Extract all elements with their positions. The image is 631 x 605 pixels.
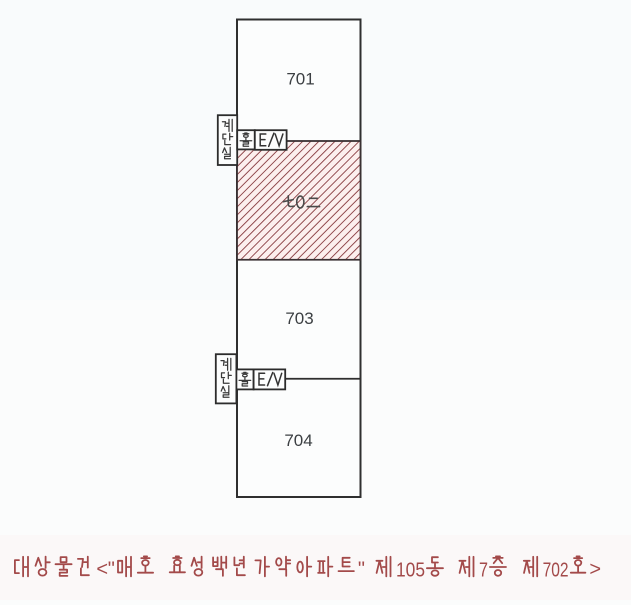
- svg-text:7: 7: [479, 559, 488, 582]
- svg-text:703: 703: [285, 309, 313, 328]
- svg-text:": ": [358, 559, 365, 581]
- svg-text:": ": [108, 559, 115, 581]
- svg-text:>: >: [589, 559, 601, 581]
- svg-text:105: 105: [396, 559, 425, 582]
- svg-text:701: 701: [286, 70, 314, 89]
- svg-text:702: 702: [543, 559, 569, 582]
- svg-text:704: 704: [284, 431, 312, 450]
- svg-text:<: <: [96, 559, 108, 581]
